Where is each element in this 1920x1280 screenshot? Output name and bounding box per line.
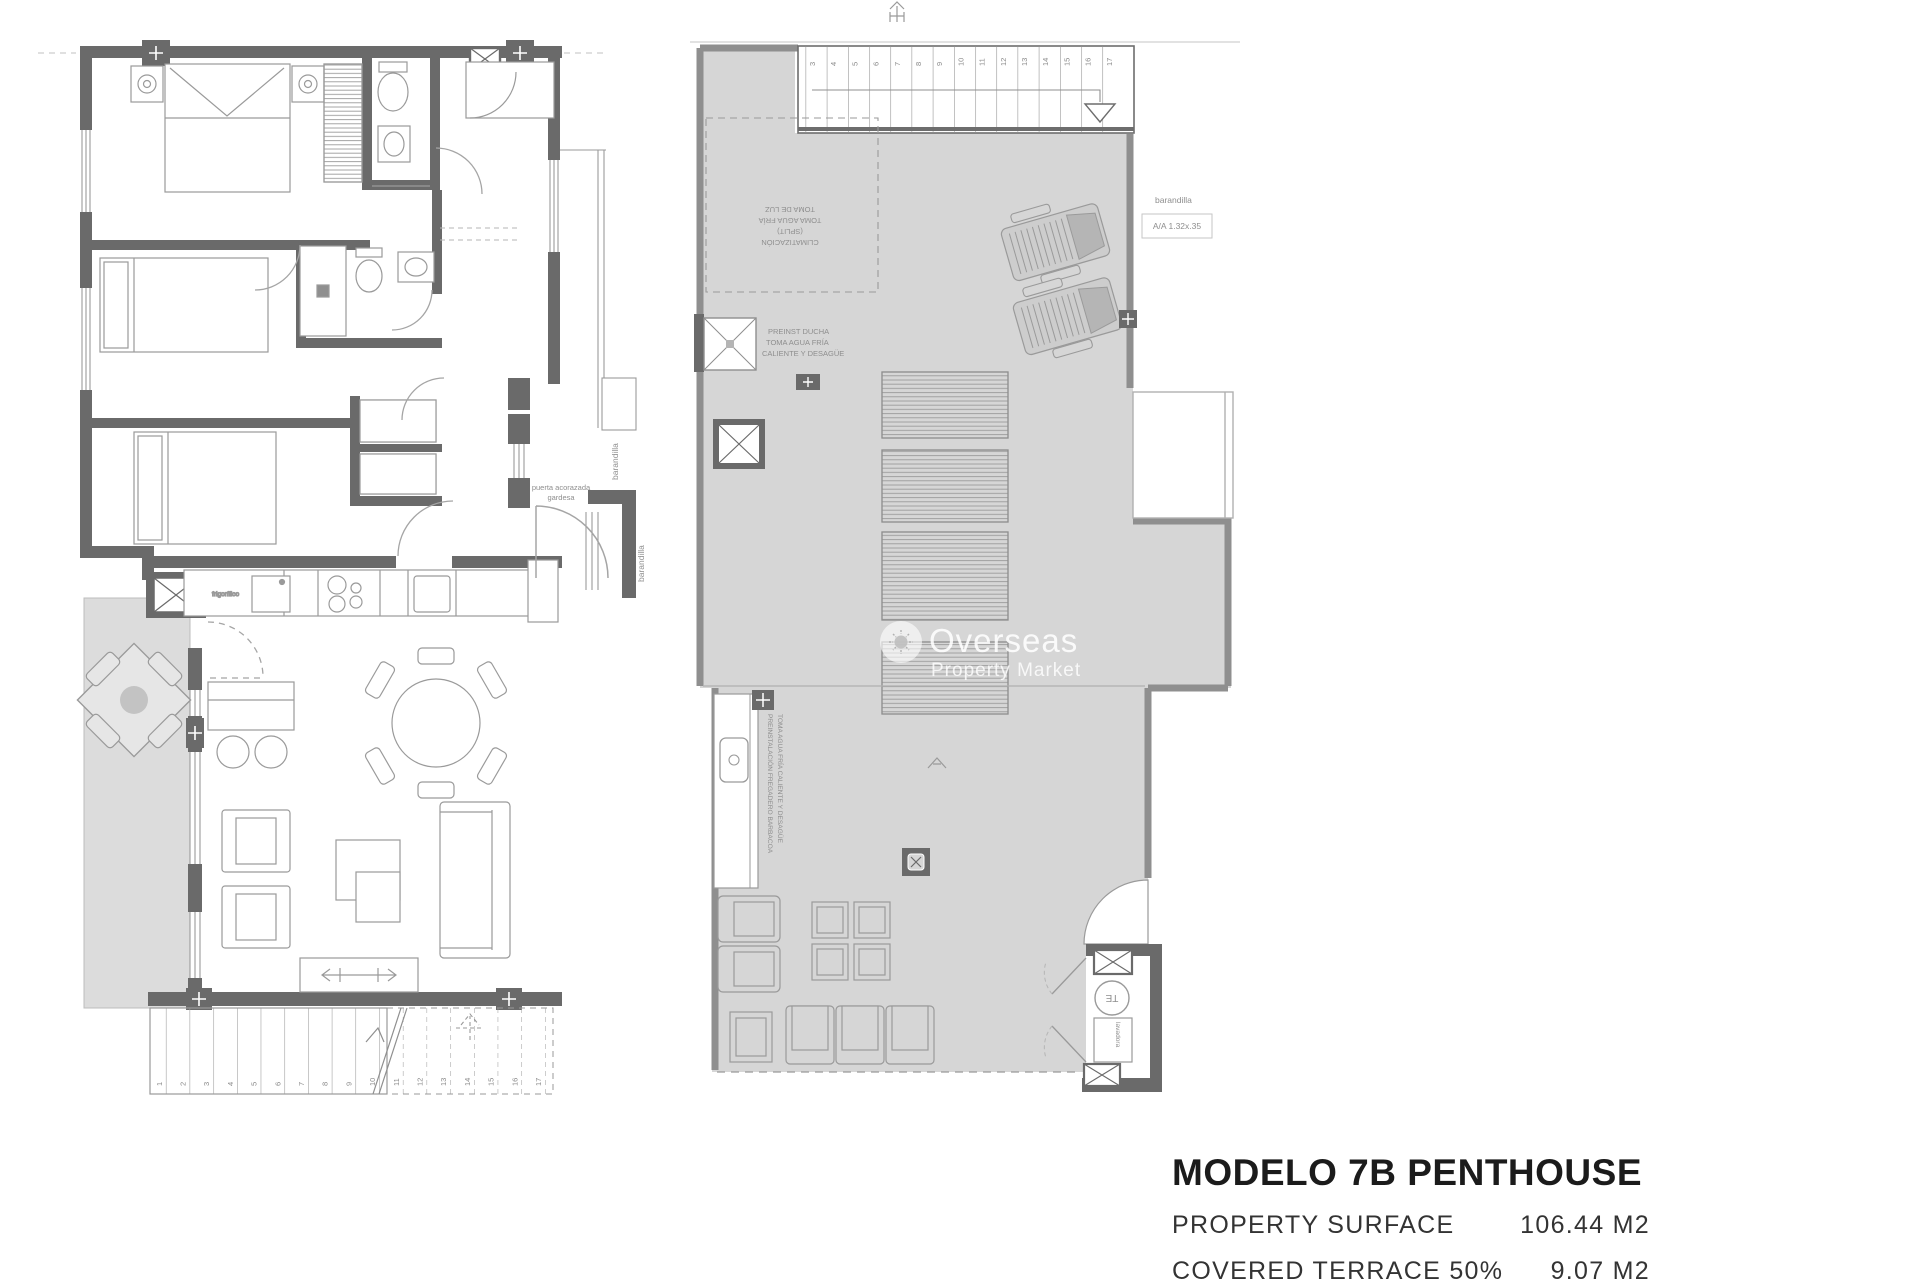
- stair-number: 11: [978, 58, 987, 66]
- stair-number: 7: [297, 1082, 306, 1086]
- te-label: TE: [1105, 992, 1118, 1003]
- stair-number: 17: [1105, 58, 1114, 66]
- barandilla-label-lower: barandilla: [636, 545, 646, 582]
- bathroom1: [372, 62, 430, 186]
- main-floor-plan: frigorífico: [38, 40, 646, 1094]
- svg-text:TOMA AGUA FRÍA CALIENTE Y DESA: TOMA AGUA FRÍA CALIENTE Y DESAGÜE: [776, 714, 785, 844]
- stair-number: 5: [850, 62, 859, 66]
- stair-number: 3: [808, 62, 817, 66]
- stair-number: 8: [321, 1082, 330, 1086]
- plan-title: MODELO 7B PENTHOUSE: [1172, 1152, 1650, 1194]
- dining-table: [364, 648, 508, 798]
- stair-number: 16: [510, 1078, 519, 1086]
- stair-number: 9: [935, 62, 944, 66]
- terrace-left: [77, 598, 190, 1008]
- svg-text:CALIENTE Y DESAGÜE: CALIENTE Y DESAGÜE: [762, 349, 844, 358]
- stair-number: 2: [179, 1082, 188, 1086]
- stair-number: 6: [273, 1082, 282, 1086]
- svg-text:PREINSTALACIÓN FREGADERO BARBA: PREINSTALACIÓN FREGADERO BARBACOA: [766, 714, 775, 854]
- stair-number: 5: [250, 1082, 259, 1086]
- stair-number: 4: [226, 1082, 235, 1086]
- floorplan-drawing: frigorífico: [0, 0, 1920, 1280]
- entry-wing: [560, 150, 636, 430]
- bathroom2: [300, 246, 434, 336]
- svg-text:puerta acorazada: puerta acorazada: [532, 483, 591, 492]
- bedroom2: [100, 258, 268, 352]
- stair-number: 9: [344, 1082, 353, 1086]
- barandilla-roof-label: barandilla: [1155, 195, 1192, 205]
- svg-text:TOMA AGUA FRÍA: TOMA AGUA FRÍA: [759, 216, 822, 225]
- living-room: [222, 802, 510, 992]
- stair-number: 16: [1084, 58, 1093, 66]
- kitchen: frigorífico: [184, 560, 558, 768]
- stair-number: 13: [439, 1078, 448, 1086]
- roof-shaft-box: [716, 422, 762, 466]
- terrace-label: COVERED TERRACE 50%: [1172, 1257, 1503, 1280]
- watermark-tagline: Property Market: [931, 660, 1081, 681]
- watermark-brand: Overseas: [929, 622, 1078, 659]
- floorplan-sheet: frigorífico: [0, 0, 1920, 1280]
- stair-number: 11: [392, 1078, 401, 1086]
- svg-text:gardesa: gardesa: [547, 493, 575, 502]
- bedroom1: [131, 64, 362, 192]
- entry-door-label: puerta acorazada gardesa: [532, 483, 591, 502]
- svg-text:(SPLIT): (SPLIT): [777, 227, 803, 236]
- svg-text:CLIMATIZACIÓN: CLIMATIZACIÓN: [761, 238, 818, 247]
- shower-label: PREINST DUCHA: [768, 327, 829, 336]
- beam-dashed: [440, 228, 520, 240]
- surface-row: PROPERTY SURFACE 106.44 M2: [1172, 1211, 1650, 1240]
- stair-number: 12: [416, 1078, 425, 1086]
- svg-text:TOMA DE LUZ: TOMA DE LUZ: [765, 205, 815, 214]
- north-symbol: [890, 2, 904, 22]
- entry-closet: [466, 62, 554, 118]
- barandilla-label-upper: barandilla: [610, 443, 620, 480]
- stair-number: 7: [893, 62, 902, 66]
- stairs-lower: 1234567891011121314151617: [150, 1008, 553, 1094]
- lavadora-label: lavadora: [1114, 1022, 1121, 1048]
- stair-number: 4: [829, 62, 838, 66]
- fridge-label: frigorífico: [212, 591, 239, 598]
- stair-number: 1: [155, 1082, 164, 1086]
- stair-number: 15: [487, 1078, 496, 1086]
- stair-number: 12: [999, 58, 1008, 66]
- terrace-row: COVERED TERRACE 50% 9.07 M2: [1172, 1257, 1650, 1280]
- stair-number: 17: [534, 1078, 543, 1086]
- stair-number: 8: [914, 62, 923, 66]
- stair-number: 10: [956, 58, 965, 66]
- svg-text:TOMA AGUA FRÍA: TOMA AGUA FRÍA: [766, 338, 829, 347]
- aa-unit-label: A/A 1.32x.35: [1153, 221, 1201, 231]
- stair-number: 13: [1020, 58, 1029, 66]
- stair-number: 15: [1062, 58, 1071, 66]
- surface-value: 106.44 M2: [1520, 1211, 1650, 1240]
- roof-terrace-plan: 34567891011121314151617 CLIMATIZACIÓN (S…: [690, 2, 1240, 1092]
- stair-number: 3: [202, 1082, 211, 1086]
- stair-number: 6: [872, 62, 881, 66]
- surface-label: PROPERTY SURFACE: [1172, 1211, 1454, 1240]
- terrace-value: 9.07 M2: [1551, 1257, 1650, 1280]
- stair-number: 10: [368, 1078, 377, 1086]
- stair-number: 14: [463, 1078, 472, 1086]
- title-block: MODELO 7B PENTHOUSE PROPERTY SURFACE 106…: [1172, 1152, 1650, 1280]
- stair-number: 14: [1041, 58, 1050, 66]
- roof-extension-outline: [1133, 392, 1233, 518]
